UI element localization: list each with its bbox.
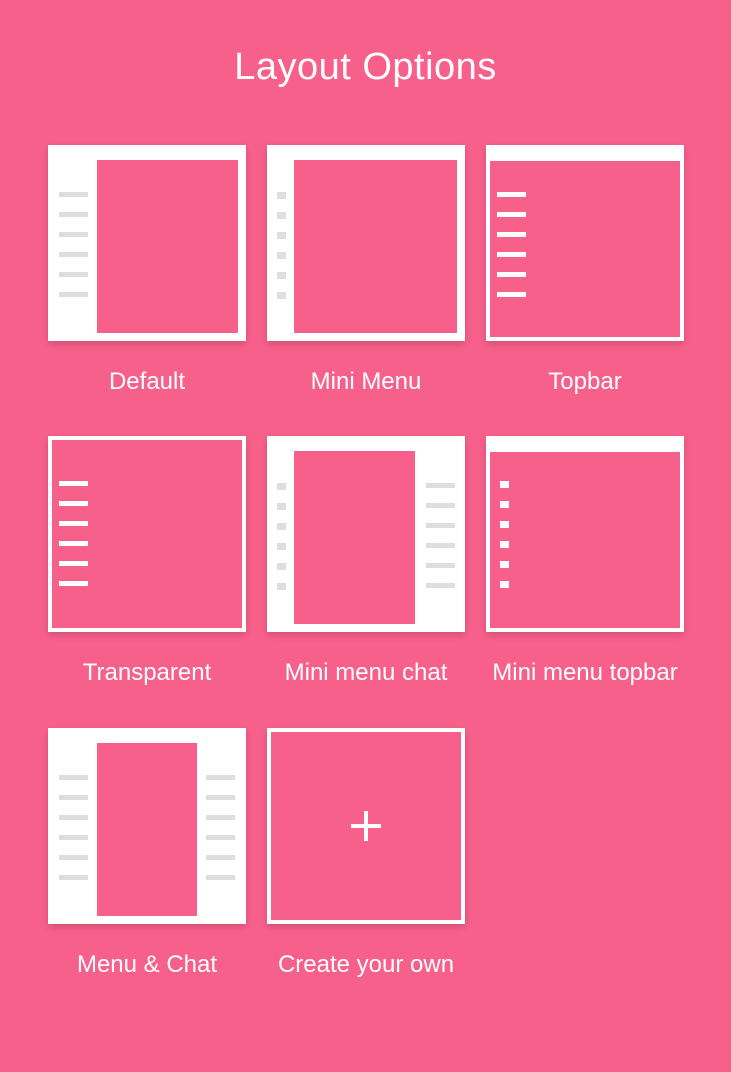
layout-option-label: Mini menu topbar bbox=[492, 660, 677, 686]
content-area bbox=[52, 440, 242, 628]
layout-thumbnail-create-your-own[interactable] bbox=[267, 728, 465, 924]
layout-option-label: Mini menu chat bbox=[285, 660, 448, 686]
layout-option-transparent[interactable]: Transparent bbox=[48, 436, 246, 686]
layout-option-label: Create your own bbox=[278, 952, 454, 978]
content-area bbox=[490, 161, 680, 337]
content-area bbox=[294, 451, 415, 624]
layout-option-label: Mini Menu bbox=[311, 369, 422, 395]
layout-option-label: Topbar bbox=[548, 369, 621, 395]
layout-thumbnail-transparent[interactable] bbox=[48, 436, 246, 632]
mini-menu-dots bbox=[277, 483, 286, 590]
menu-lines bbox=[59, 481, 88, 586]
chat-panel-lines bbox=[426, 483, 455, 588]
page-title: Layout Options bbox=[0, 48, 731, 86]
layout-thumbnail-menu-chat[interactable] bbox=[48, 728, 246, 924]
layout-option-mini-menu-chat[interactable]: Mini menu chat bbox=[267, 436, 465, 686]
plus-icon bbox=[351, 811, 381, 841]
content-area bbox=[294, 160, 457, 333]
layout-option-create-your-own[interactable]: Create your own bbox=[267, 728, 465, 978]
layout-option-default[interactable]: Default bbox=[48, 145, 246, 395]
content-area bbox=[490, 452, 680, 628]
layout-thumbnail-mini-menu-chat[interactable] bbox=[267, 436, 465, 632]
mini-menu-dots bbox=[500, 481, 509, 588]
layout-thumbnail-mini-menu-topbar[interactable] bbox=[486, 436, 684, 632]
layout-option-label: Default bbox=[109, 369, 185, 395]
layout-thumbnail-topbar[interactable] bbox=[486, 145, 684, 341]
chat-panel-lines bbox=[206, 775, 235, 880]
content-area bbox=[271, 732, 461, 920]
menu-lines bbox=[497, 192, 526, 297]
plus-vertical-bar bbox=[364, 811, 368, 841]
layout-option-menu-chat[interactable]: Menu & Chat bbox=[48, 728, 246, 978]
layout-thumbnail-default[interactable] bbox=[48, 145, 246, 341]
layout-option-label: Transparent bbox=[83, 660, 212, 686]
layout-option-mini-menu[interactable]: Mini Menu bbox=[267, 145, 465, 395]
content-area bbox=[97, 160, 238, 333]
sidebar-menu-lines bbox=[59, 775, 88, 880]
content-area bbox=[97, 743, 197, 916]
layout-option-mini-menu-topbar[interactable]: Mini menu topbar bbox=[486, 436, 684, 686]
layout-option-label: Menu & Chat bbox=[77, 952, 217, 978]
mini-menu-dots bbox=[277, 192, 286, 299]
layout-options-grid: Default Mini Menu Topbar Transparent bbox=[0, 145, 731, 978]
layout-option-topbar[interactable]: Topbar bbox=[486, 145, 684, 395]
layout-thumbnail-mini-menu[interactable] bbox=[267, 145, 465, 341]
sidebar-menu-lines bbox=[59, 192, 88, 297]
